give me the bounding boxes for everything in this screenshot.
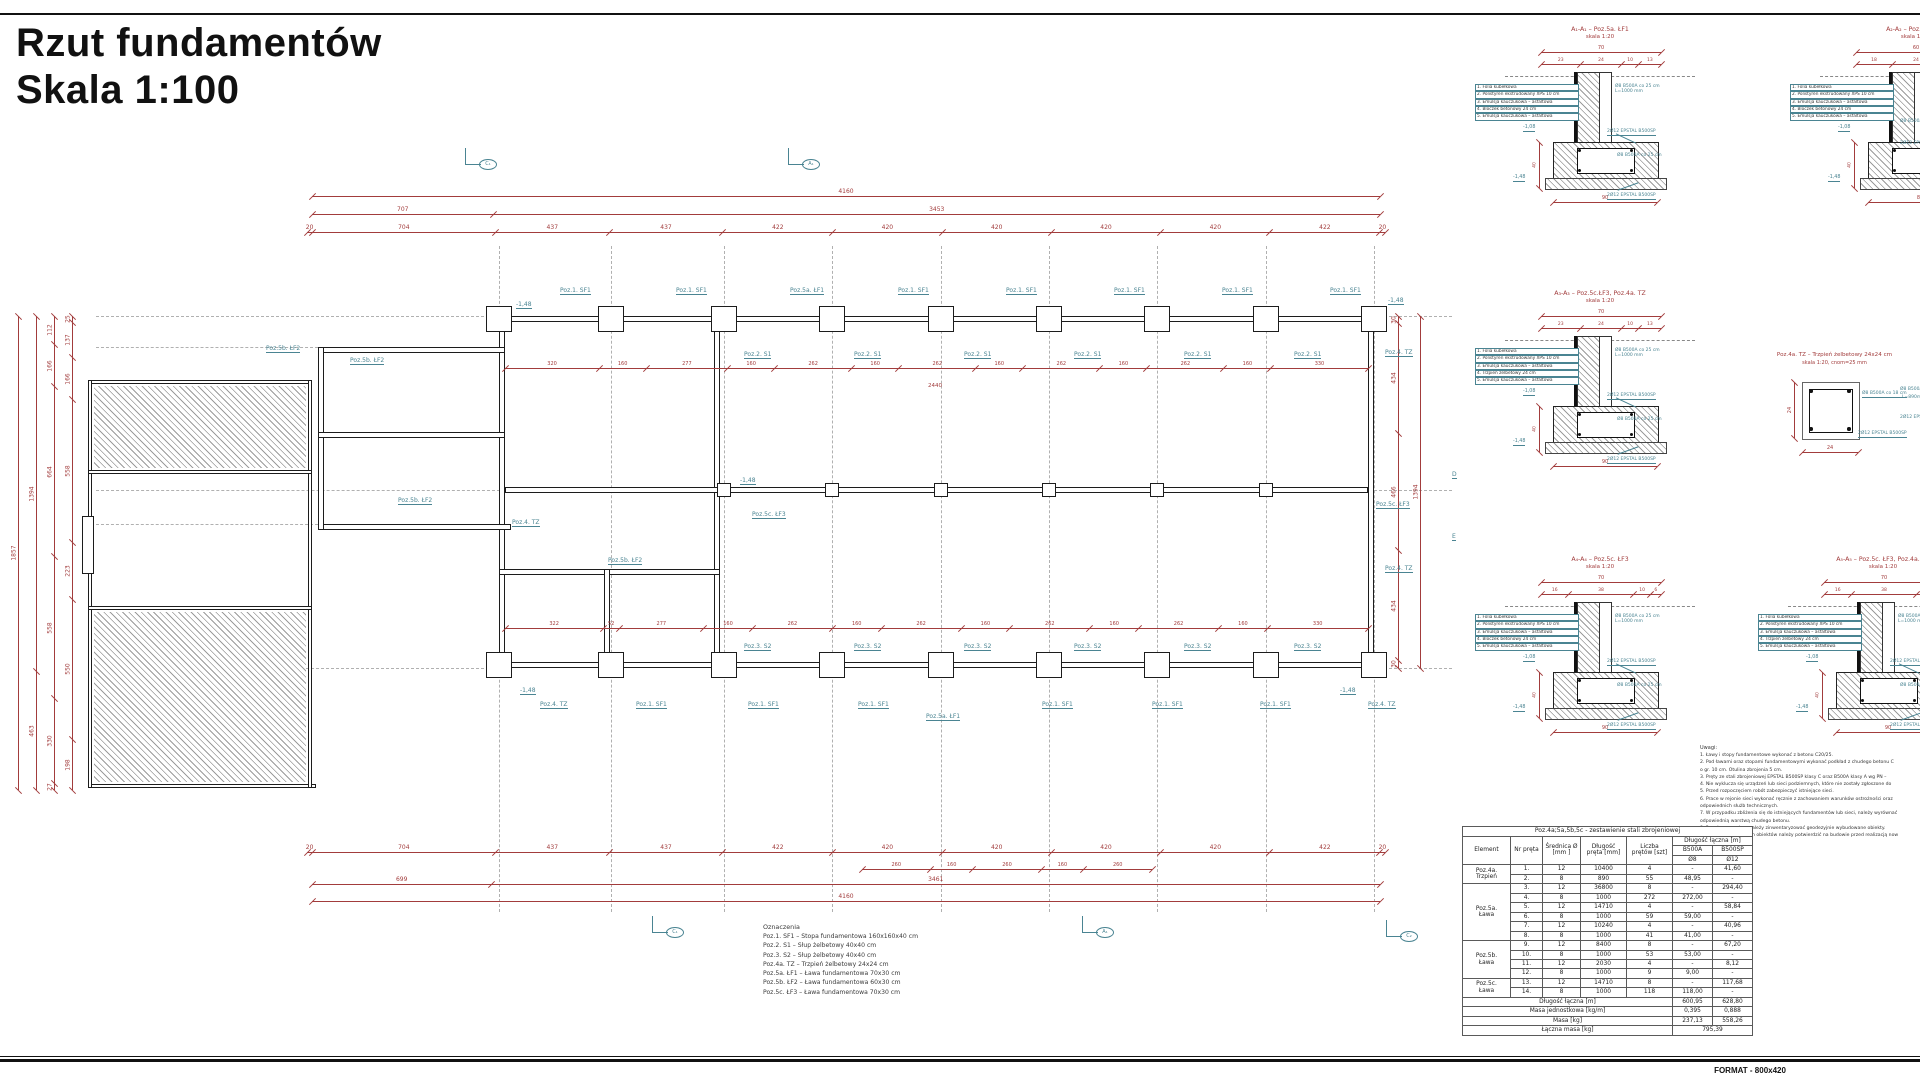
- rebar-dot: [1578, 679, 1581, 682]
- materials-list-item: 1. Folia kubełkowa: [1475, 84, 1579, 91]
- rebar-dot: [1809, 427, 1813, 431]
- materials-list-item: 2. Polistyren ekstrudowany XPS 10 cm: [1790, 91, 1894, 98]
- table-cell: 1.: [1511, 865, 1543, 874]
- table-cell: 8: [1543, 931, 1581, 940]
- rebar-dot: [1913, 699, 1916, 702]
- dim-line: [1539, 406, 1540, 452]
- note-line: 6. Prace w rejonie sieci wykonać ręcznie…: [1700, 796, 1919, 803]
- footer-value: 237,13: [1673, 1016, 1713, 1025]
- stirrup-outline: [1860, 678, 1918, 704]
- dim-line: [1539, 672, 1540, 718]
- materials-list-item: 4. Bloczek betonowy 24 cm: [1790, 106, 1894, 113]
- materials-list-item: 2. Polistyren ekstrudowany XPS 10 cm: [1475, 91, 1579, 98]
- table-cell: 2.: [1511, 874, 1543, 883]
- dim-number: 40: [1533, 426, 1538, 432]
- rebar-dot: [1913, 679, 1916, 682]
- detail-scale: skala 1:20, cnom=25 mm: [1752, 360, 1917, 366]
- table-cell: 12.: [1511, 969, 1543, 978]
- rebar-label-clipped: L=890mm: [1902, 396, 1920, 401]
- lean-concrete-section: [1545, 708, 1667, 720]
- rebar-label: Ø8 B500A co 18 cm: [1862, 392, 1907, 398]
- steel-schedule: Poz.4a;5a,5b,5c - zestawienie stali zbro…: [1462, 826, 1753, 1036]
- table-cell: 14.: [1511, 988, 1543, 997]
- rebar-label: L=1000 mm: [1898, 620, 1920, 625]
- dim-line: [1541, 52, 1661, 53]
- lean-concrete-section: [1860, 178, 1920, 190]
- table-cell: 4: [1627, 865, 1673, 874]
- dim-number: 10: [1639, 588, 1645, 593]
- table-cell: 58,84: [1713, 903, 1753, 912]
- detail-trzpien-section: Poz.4a. TZ – Trzpień żelbetowy 24x24 cms…: [1752, 352, 1917, 472]
- table-cell: -: [1713, 950, 1753, 959]
- footer-value: 0,888: [1713, 1007, 1753, 1016]
- detail-title: Poz.4a. TZ – Trzpień żelbetowy 24x24 cm: [1752, 352, 1917, 358]
- rebar-label-clipped: Ø8 B500A co 25 cm: [1900, 120, 1920, 125]
- dim-number: 24: [1827, 445, 1833, 451]
- table-cell: 53: [1627, 950, 1673, 959]
- materials-list: 1. Folia kubełkowa2. Polistyren ekstrudo…: [1475, 84, 1579, 121]
- dim-number: 24: [1598, 58, 1604, 63]
- rebar-label-clipped: 2Ø12 EPSTAL B500SP: [1900, 416, 1920, 421]
- materials-list: 1. Folia kubełkowa2. Polistyren ekstrudo…: [1790, 84, 1894, 121]
- format-label: FORMAT - 800x420: [1660, 1066, 1840, 1075]
- element-group: Poz.5a. Ława: [1463, 884, 1511, 941]
- wall-section: [1577, 602, 1601, 674]
- rebar-dot: [1630, 679, 1633, 682]
- table-cell: 36800: [1581, 884, 1627, 893]
- footer-value: 628,80: [1713, 997, 1753, 1006]
- table-cell: 1000: [1581, 893, 1627, 902]
- rebar-dot: [1578, 699, 1581, 702]
- rebar-dot: [1861, 679, 1864, 682]
- rebar-label: 2Ø12 EPSTAL B500SP: [1607, 660, 1656, 666]
- materials-list-item: 3. Emulsja kauczukowa – asfaltowa: [1475, 363, 1579, 370]
- dim-number: 24: [1913, 58, 1919, 63]
- table-cell: 41: [1627, 931, 1673, 940]
- detail-title: A₃-A₃ – Poz.5c.ŁF3, Poz.4a. TZ: [1475, 290, 1725, 297]
- table-cell: 8: [1543, 950, 1581, 959]
- note-line: 5. Przed rozpoczęciem robót zabezpieczyć…: [1700, 788, 1919, 795]
- rebar-dot: [1861, 699, 1864, 702]
- dim-line: [1541, 582, 1661, 583]
- dim-line: [1856, 64, 1920, 65]
- materials-list-item: 1. Folia kubełkowa: [1475, 614, 1579, 621]
- legend-item: Poz.3. S2 – Słup żelbetowy 40x40 cm: [763, 951, 918, 960]
- dim-number: 13: [1647, 58, 1653, 63]
- steel-schedule-table: Poz.4a;5a,5b,5c - zestawienie stali zbro…: [1462, 826, 1753, 1036]
- dim-line: [1553, 466, 1657, 467]
- rebar-dot: [1630, 169, 1633, 172]
- table-cell: 9: [1627, 969, 1673, 978]
- rebar-dot: [1578, 149, 1581, 152]
- rebar-label: 2Ø12 EPSTAL B500SP: [1890, 724, 1920, 730]
- table-cell: 59,00: [1673, 912, 1713, 921]
- wall-section: [1860, 602, 1884, 674]
- table-cell: 3.: [1511, 884, 1543, 893]
- table-cell: 8,12: [1713, 960, 1753, 969]
- element-group: Poz.5c. Ława: [1463, 978, 1511, 997]
- dim-number: 10: [1627, 322, 1633, 327]
- table-cell: 12: [1543, 978, 1581, 987]
- table-cell: -: [1673, 865, 1713, 874]
- rebar-label: 2Ø12 EPSTAL B500SP: [1890, 660, 1920, 666]
- note-line: 4. Nie wyklucza się urządzeń lub sieci p…: [1700, 781, 1919, 788]
- table-cell: -: [1713, 988, 1753, 997]
- rebar-label: 2Ø12 EPSTAL B500SP: [1607, 194, 1656, 200]
- rebar-dot: [1893, 169, 1896, 172]
- col-header: Długość łączna [m]: [1673, 836, 1753, 845]
- table-cell: -: [1713, 874, 1753, 883]
- detail-scale: skala 1:20: [1475, 298, 1725, 304]
- rebar-dot: [1630, 699, 1633, 702]
- bottom-border-rule-thick: [0, 1059, 1920, 1062]
- footer-label: Długość łączna [m]: [1463, 997, 1673, 1006]
- table-cell: 294,40: [1713, 884, 1753, 893]
- col-header: Ø8: [1673, 855, 1713, 864]
- note-line: odpowiednich służb technicznych.: [1700, 803, 1919, 810]
- table-cell: 8: [1627, 941, 1673, 950]
- table-cell: 272,00: [1673, 893, 1713, 902]
- table-cell: 9.: [1511, 941, 1543, 950]
- dim-line: [1541, 316, 1661, 317]
- table-cell: 12: [1543, 903, 1581, 912]
- table-cell: 8: [1543, 912, 1581, 921]
- materials-list-item: 3. Emulsja kauczukowa – asfaltowa: [1790, 99, 1894, 106]
- table-cell: 1000: [1581, 969, 1627, 978]
- table-cell: 8: [1627, 978, 1673, 987]
- col-header: Nr pręta: [1511, 836, 1543, 864]
- drawing-sheet: Rzut fundamentów Skala 1:100 41607073453…: [0, 0, 1920, 1080]
- table-cell: 8: [1543, 874, 1581, 883]
- elevation-marker: -1,08: [1838, 126, 1850, 132]
- dim-line: [1802, 452, 1858, 453]
- dim-line: [1836, 732, 1920, 733]
- table-cell: 118,00: [1673, 988, 1713, 997]
- table-cell: -: [1713, 969, 1753, 978]
- dim-number: 60: [1913, 45, 1919, 51]
- dim-line: [1539, 142, 1540, 188]
- table-cell: -: [1713, 912, 1753, 921]
- table-cell: 55: [1627, 874, 1673, 883]
- materials-list-item: 1. Folia kubełkowa: [1758, 614, 1862, 621]
- table-cell: 14710: [1581, 903, 1627, 912]
- detail-title: A₁-A₁ – Poz.5a. ŁF1: [1475, 26, 1725, 33]
- rebar-label: L=1000 mm: [1615, 620, 1643, 625]
- elevation-marker: -1,48: [1513, 440, 1525, 446]
- legend-item: Poz.1. SF1 – Stopa fundamentowa 160x160x…: [763, 932, 918, 941]
- table-cell: 59: [1627, 912, 1673, 921]
- stirrup-outline: [1577, 412, 1635, 438]
- elevation-marker: -1,08: [1523, 656, 1535, 662]
- dim-line: [1868, 202, 1920, 203]
- dim-number: 38: [1598, 588, 1604, 593]
- dim-number: 40: [1533, 162, 1538, 168]
- materials-list-item: 2. Polistyren ekstrudowany XPS 10 cm: [1475, 621, 1579, 628]
- legend-item: Poz.5b. ŁF2 – Ława fundamentowa 60x30 cm: [763, 978, 918, 987]
- table-cell: 1000: [1581, 988, 1627, 997]
- dim-line: [1553, 732, 1657, 733]
- rebar-label: 2Ø12 EPSTAL B500SP: [1607, 724, 1656, 730]
- dim-number: 6: [1654, 588, 1657, 593]
- footer-label: Masa jednostkowa [kg/m]: [1463, 1007, 1673, 1016]
- table-cell: 12: [1543, 884, 1581, 893]
- table-cell: -: [1673, 941, 1713, 950]
- table-cell: 8: [1627, 884, 1673, 893]
- stirrup-outline: [1577, 148, 1635, 174]
- footer-label: Masa [kg]: [1463, 1016, 1673, 1025]
- elevation-marker: -1,08: [1523, 390, 1535, 396]
- table-cell: 890: [1581, 874, 1627, 883]
- materials-list-item: 3. Emulsja kauczukowa – asfaltowa: [1758, 629, 1862, 636]
- footer-total: 795,39: [1673, 1026, 1753, 1035]
- stirrup-outline: [1892, 148, 1920, 174]
- table-cell: 67,20: [1713, 941, 1753, 950]
- table-cell: 5.: [1511, 903, 1543, 912]
- materials-list-item: 1. Folia kubełkowa: [1475, 348, 1579, 355]
- wall-section: [1577, 72, 1601, 144]
- table-cell: 272: [1627, 893, 1673, 902]
- dim-number: 10: [1627, 58, 1633, 63]
- col-header: Długość pręta [mm]: [1581, 836, 1627, 864]
- table-cell: 7.: [1511, 922, 1543, 931]
- rebar-label-clipped: 2Ø12 EPSTAL B500SP: [1900, 142, 1920, 147]
- dim-number: 38: [1881, 588, 1887, 593]
- table-cell: 10.: [1511, 950, 1543, 959]
- materials-list: 1. Folia kubełkowa2. Polistyren ekstrudo…: [1475, 614, 1579, 651]
- table-cell: 118: [1627, 988, 1673, 997]
- table-cell: 4: [1627, 922, 1673, 931]
- detail-section-2: A₂-A₂ – Poz.5b. ŁF2skala 1:206018241081.…: [1790, 26, 1920, 226]
- materials-list-item: 5. Emulsja kauczukowa – asfaltowa: [1790, 113, 1894, 120]
- rebar-dot: [1630, 149, 1633, 152]
- rebar-label: Ø8 B500A co 25 cm: [1617, 418, 1662, 423]
- dim-number: 70: [1598, 45, 1604, 51]
- dim-number: 70: [1598, 309, 1604, 315]
- ground-dash-line: [1788, 606, 1920, 607]
- table-cell: 117,68: [1713, 978, 1753, 987]
- materials-list-item: 1. Folia kubełkowa: [1790, 84, 1894, 91]
- table-cell: -: [1713, 893, 1753, 902]
- rebar-label: Ø8 B500A co 25 cm: [1617, 154, 1662, 159]
- detail-scale: skala 1:20: [1475, 34, 1725, 40]
- rebar-label: Ø8 B500A co 25 cm: [1900, 684, 1920, 689]
- elevation-marker: -1,48: [1513, 706, 1525, 712]
- col-header: Średnica Ø [mm ]: [1543, 836, 1581, 864]
- dim-line: [1824, 594, 1920, 595]
- dim-number: 16: [1835, 588, 1841, 593]
- materials-list-item: 4. Trzpień żelbetowy 24 cm: [1758, 636, 1862, 643]
- plan-legend: Oznaczenia Poz.1. SF1 – Stopa fundamento…: [763, 922, 918, 997]
- table-cell: 4: [1627, 903, 1673, 912]
- rebar-label: L=1000 mm: [1615, 354, 1643, 359]
- materials-list: 1. Folia kubełkowa2. Polistyren ekstrudo…: [1475, 348, 1579, 385]
- rebar-label: L=1000 mm: [1615, 90, 1643, 95]
- elevation-marker: -1,08: [1806, 656, 1818, 662]
- table-cell: 14710: [1581, 978, 1627, 987]
- table-cell: 8400: [1581, 941, 1627, 950]
- dim-number: 40: [1816, 692, 1821, 698]
- footer-value: 600,95: [1673, 997, 1713, 1006]
- table-cell: 4: [1627, 960, 1673, 969]
- dim-line: [1822, 672, 1823, 718]
- table-title: Poz.4a;5a,5b,5c - zestawienie stali zbro…: [1463, 827, 1753, 837]
- note-line: odpowiednią warstwą chudego betonu.: [1700, 818, 1919, 825]
- note-line: o gr. 10 cm. Otulina zbrojenia 5 cm.: [1700, 767, 1919, 774]
- table-cell: 6.: [1511, 912, 1543, 921]
- dim-number: 70: [1881, 575, 1887, 581]
- rebar-label: 2Ø12 EPSTAL B500SP: [1607, 394, 1656, 400]
- materials-list-item: 5. Emulsja kauczukowa – asfaltowa: [1475, 377, 1579, 384]
- dim-number: 13: [1647, 322, 1653, 327]
- rebar-dot: [1578, 413, 1581, 416]
- footer-label: Łączna masa [kg]: [1463, 1026, 1673, 1035]
- table-cell: 12: [1543, 941, 1581, 950]
- materials-list-item: 2. Polistyren ekstrudowany XPS 10 cm: [1758, 621, 1862, 628]
- table-cell: 12: [1543, 960, 1581, 969]
- table-cell: 8: [1543, 988, 1581, 997]
- table-cell: 10400: [1581, 865, 1627, 874]
- detail-title: A₂-A₂ – Poz.5b. ŁF2: [1790, 26, 1920, 33]
- dim-number: 23: [1558, 322, 1564, 327]
- col-header: B500A: [1673, 846, 1713, 855]
- table-cell: -: [1673, 978, 1713, 987]
- materials-list-item: 5. Emulsja kauczukowa – asfaltowa: [1475, 643, 1579, 650]
- dim-number: 70: [1598, 575, 1604, 581]
- wall-section: [1577, 336, 1601, 408]
- dim-line: [1553, 202, 1657, 203]
- rebar-label: Ø8 B500A co 25 cm: [1617, 684, 1662, 689]
- table-cell: 41,00: [1673, 931, 1713, 940]
- table-cell: 8: [1543, 969, 1581, 978]
- insulation-section: [1914, 72, 1920, 144]
- table-cell: 11.: [1511, 960, 1543, 969]
- materials-list-item: 4. Bloczek betonowy 24 cm: [1475, 636, 1579, 643]
- table-cell: 53,00: [1673, 950, 1713, 959]
- footer-value: 0,395: [1673, 1007, 1713, 1016]
- materials-list: 1. Folia kubełkowa2. Polistyren ekstrudo…: [1758, 614, 1862, 651]
- table-cell: 4.: [1511, 893, 1543, 902]
- notes-heading: Uwagi:: [1700, 744, 1919, 752]
- table-cell: -: [1673, 903, 1713, 912]
- table-cell: 1000: [1581, 950, 1627, 959]
- dim-line: [1541, 328, 1661, 329]
- dim-number: 16: [1552, 588, 1558, 593]
- table-cell: 1000: [1581, 931, 1627, 940]
- dim-number: 40: [1848, 162, 1853, 168]
- dim-line: [1824, 582, 1920, 583]
- footer-value: 558,26: [1713, 1016, 1753, 1025]
- dim-number: 18: [1871, 58, 1877, 63]
- table-cell: 41,60: [1713, 865, 1753, 874]
- element-group: Poz.4a. Trzpień: [1463, 865, 1511, 884]
- elevation-marker: -1,48: [1513, 176, 1525, 182]
- dim-line: [1541, 64, 1661, 65]
- col-header: Ø12: [1713, 855, 1753, 864]
- table-cell: 8: [1543, 893, 1581, 902]
- element-group: Poz.5b. Ława: [1463, 941, 1511, 979]
- elevation-marker: -1,48: [1828, 176, 1840, 182]
- rebar-label: 2Ø12 EPSTAL B500SP: [1607, 458, 1656, 464]
- rebar-label: 2Ø12 EPSTAL B500SP: [1607, 130, 1656, 136]
- note-line: 7. W przypadku zbliżenia się do istnieją…: [1700, 810, 1919, 817]
- detail-scale: skala 1:20: [1790, 34, 1920, 40]
- materials-list-item: 3. Emulsja kauczukowa – asfaltowa: [1475, 629, 1579, 636]
- detail-title: A₄-A₄ – Poz.5c. ŁF3: [1475, 556, 1725, 563]
- materials-list-item: 4. Bloczek betonowy 24 cm: [1475, 106, 1579, 113]
- legend-item: Poz.2. S1 – Słup żelbetowy 40x40 cm: [763, 941, 918, 950]
- table-cell: 10240: [1581, 922, 1627, 931]
- materials-list-item: 2. Polistyren ekstrudowany XPS 10 cm: [1475, 355, 1579, 362]
- dim-number: 24: [1598, 322, 1604, 327]
- table-cell: 12: [1543, 922, 1581, 931]
- detail-section-4: A₄-A₄ – Poz.5c. ŁF3skala 1:207016381061.…: [1475, 556, 1725, 756]
- bottom-border-rule-thin: [0, 1056, 1920, 1057]
- legend-item: Poz.5c. ŁF3 – Ława fundamentowa 70x30 cm: [763, 988, 918, 997]
- rebar-label-clipped: Ø8 B500A co 25 cm: [1900, 388, 1920, 393]
- rebar-label: 2Ø12 EPSTAL B500SP: [1858, 432, 1907, 438]
- lean-concrete-section: [1545, 442, 1667, 454]
- materials-list-item: 5. Emulsja kauczukowa – asfaltowa: [1758, 643, 1862, 650]
- materials-list-item: 5. Emulsja kauczukowa – asfaltowa: [1475, 113, 1579, 120]
- rebar-dot: [1578, 433, 1581, 436]
- table-cell: -: [1673, 960, 1713, 969]
- dim-number: 40: [1533, 692, 1538, 698]
- lean-concrete-section: [1545, 178, 1667, 190]
- table-cell: 1000: [1581, 912, 1627, 921]
- table-cell: 48,95: [1673, 874, 1713, 883]
- detail-scale: skala 1:20: [1475, 564, 1725, 570]
- dim-line: [1856, 52, 1920, 53]
- dim-number: 24: [1787, 407, 1793, 413]
- rebar-dot: [1809, 389, 1813, 393]
- table-cell: -: [1673, 922, 1713, 931]
- elevation-marker: -1,48: [1796, 706, 1808, 712]
- note-line: 3. Pręty ze stali zbrojeniowej EPSTAL B5…: [1700, 774, 1919, 781]
- rebar-dot: [1893, 149, 1896, 152]
- dim-line: [1794, 382, 1795, 438]
- detail-scale: skala 1:20: [1758, 564, 1920, 570]
- table-cell: -: [1713, 931, 1753, 940]
- legend-item: Poz.4a. TZ – Trzpień żelbetowy 24x24 cm: [763, 960, 918, 969]
- rebar-dot: [1847, 427, 1851, 431]
- stirrup-outline: [1809, 389, 1853, 433]
- legend-heading: Oznaczenia: [763, 922, 918, 932]
- materials-list-item: 4. Trzpień żelbetowy 24 cm: [1475, 370, 1579, 377]
- detail-section-5: A₅-A₅ – Poz.5c. ŁF3, Poz.4a. TZskala 1:2…: [1758, 556, 1920, 756]
- dim-number: 23: [1558, 58, 1564, 63]
- table-cell: 8.: [1511, 931, 1543, 940]
- table-cell: 9,00: [1673, 969, 1713, 978]
- col-header: B500SP: [1713, 846, 1753, 855]
- detail-title: A₅-A₅ – Poz.5c. ŁF3, Poz.4a. TZ: [1758, 556, 1920, 563]
- dim-line: [1854, 142, 1855, 188]
- materials-list-item: 3. Emulsja kauczukowa – asfaltowa: [1475, 99, 1579, 106]
- table-cell: 13.: [1511, 978, 1543, 987]
- stirrup-outline: [1577, 678, 1635, 704]
- wall-section: [1892, 72, 1916, 144]
- col-header: Liczba prętów [szt]: [1627, 836, 1673, 864]
- table-cell: -: [1673, 884, 1713, 893]
- elevation-marker: -1,08: [1523, 126, 1535, 132]
- dim-line: [1541, 594, 1661, 595]
- rebar-dot: [1630, 413, 1633, 416]
- detail-section-1: A₁-A₁ – Poz.5a. ŁF1skala 1:2070232410131…: [1475, 26, 1725, 226]
- note-line: 2. Pod ławami oraz stopami fundamentowym…: [1700, 759, 1919, 766]
- table-cell: 12: [1543, 865, 1581, 874]
- table-cell: 2030: [1581, 960, 1627, 969]
- legend-item: Poz.5a. ŁF1 – Ława fundamentowa 70x30 cm: [763, 969, 918, 978]
- col-header: Element: [1463, 836, 1511, 864]
